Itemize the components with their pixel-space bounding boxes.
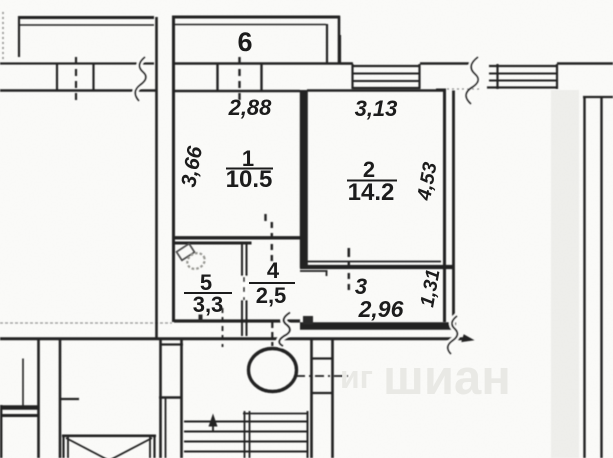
svg-text:4: 4: [267, 258, 280, 283]
svg-text:шиан: шиан: [383, 351, 511, 405]
svg-text:3,13: 3,13: [355, 96, 398, 121]
svg-text:10.5: 10.5: [226, 166, 273, 193]
svg-text:6: 6: [237, 27, 252, 57]
svg-text:2,96: 2,96: [358, 296, 404, 322]
svg-text:3,3: 3,3: [193, 292, 224, 317]
svg-text:14.2: 14.2: [348, 179, 395, 206]
svg-text:иг: иг: [340, 359, 373, 395]
svg-text:2,88: 2,88: [228, 95, 273, 120]
svg-text:2,5: 2,5: [256, 283, 287, 308]
